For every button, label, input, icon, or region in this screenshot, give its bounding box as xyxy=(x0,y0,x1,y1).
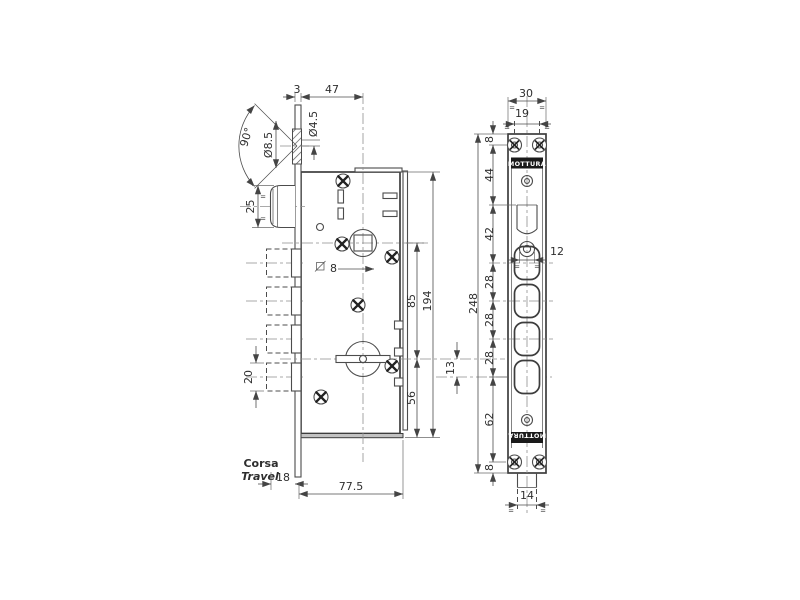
brand-label: MOTTURA xyxy=(508,160,546,168)
equal-mark: = xyxy=(508,507,514,515)
equal-mark: = xyxy=(260,215,266,223)
chain-dim-label: 8 xyxy=(483,464,496,471)
dim-30-label: 30 xyxy=(519,87,533,100)
equal-mark: = xyxy=(544,124,550,132)
dia-4-5-label: Ø4.5 xyxy=(307,111,320,137)
dim-12-label: 12 xyxy=(550,245,564,258)
dim-47-label: 47 xyxy=(325,83,339,96)
screw-icon xyxy=(335,237,349,251)
dim-77-5-label: 77.5 xyxy=(339,480,364,493)
deadbolt-root xyxy=(292,287,302,315)
equal-mark: = xyxy=(534,263,540,271)
travel-label-italian: Corsa xyxy=(243,457,278,470)
mottura-badge-bottom: MOTTURA xyxy=(508,432,546,443)
back-tab xyxy=(395,348,404,356)
screw-icon xyxy=(533,138,547,152)
screw-icon xyxy=(385,359,399,373)
mottura-badge-top: MOTTURA xyxy=(508,158,546,169)
square-8-label: 8 xyxy=(330,262,337,275)
screw-icon xyxy=(508,138,522,152)
dim-85-label: 85 xyxy=(405,294,418,308)
dim-3-label: 3 xyxy=(294,83,301,96)
equal-mark: = xyxy=(260,193,266,201)
dim-19-label: 19 xyxy=(515,107,529,120)
screw-icon xyxy=(351,298,365,312)
back-tab xyxy=(395,321,404,329)
chain-dim-label: 42 xyxy=(483,227,496,241)
latch-bolt xyxy=(271,186,296,228)
travel-label-english: Travel xyxy=(241,470,279,483)
screw-icon xyxy=(508,455,522,469)
equal-mark: = xyxy=(539,104,545,112)
dim-20-label: 20 xyxy=(242,370,255,384)
deadbolt-root xyxy=(292,325,302,353)
back-tab xyxy=(395,378,404,386)
dim-56-label: 56 xyxy=(405,391,418,405)
dim-13-label: 13 xyxy=(444,361,457,375)
chain-dim-label: 28 xyxy=(483,351,496,365)
dim-25-label: 25 xyxy=(244,200,257,214)
screw-icon xyxy=(314,390,328,404)
chain-dim-label: 28 xyxy=(483,313,496,327)
chain-dim-label: 8 xyxy=(483,136,496,143)
chain-dim-label: 28 xyxy=(483,275,496,289)
dim-248-label: 248 xyxy=(467,293,480,314)
body-top-lip xyxy=(355,168,402,172)
brand-label-inverted: MOTTURA xyxy=(508,432,546,440)
dia-8-5-label: Ø8.5 xyxy=(262,132,275,158)
lock-technical-drawing: 90° Ø8.5 Ø4.5 3 47 25 = = xyxy=(0,0,800,600)
equal-mark: = xyxy=(504,124,510,132)
dim-194-label: 194 xyxy=(421,291,434,312)
screw-icon xyxy=(336,174,350,188)
screw-icon xyxy=(533,455,547,469)
screw-icon xyxy=(385,250,399,264)
chain-dim-label: 44 xyxy=(483,168,496,182)
deadbolt-root xyxy=(292,363,302,391)
dim-18-label: 18 xyxy=(276,471,290,484)
countersunk-screw-boss xyxy=(293,129,302,164)
dim-14-label: 14 xyxy=(520,489,534,502)
equal-mark: = xyxy=(540,507,546,515)
deadbolt-root xyxy=(292,249,302,277)
body-bottom-edge xyxy=(299,434,403,438)
equal-mark: = xyxy=(514,263,520,271)
chain-dim-label: 62 xyxy=(483,413,496,427)
